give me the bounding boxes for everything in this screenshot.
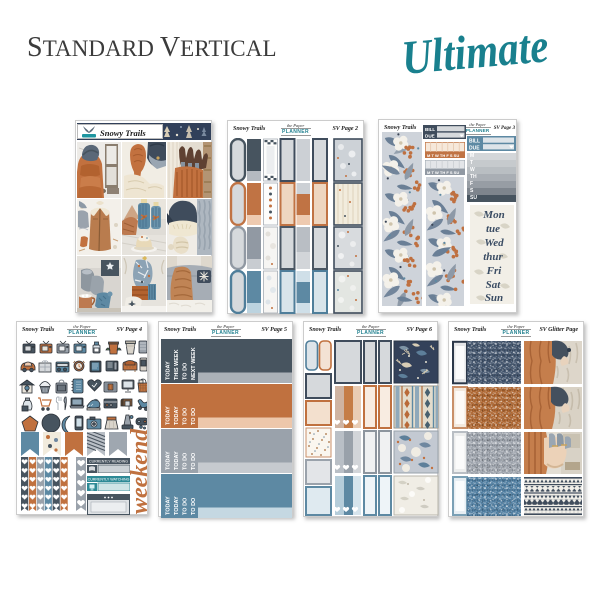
svg-text:NEXT WEEK: NEXT WEEK xyxy=(191,347,197,380)
svg-text:TODAY: TODAY xyxy=(166,451,172,470)
svg-text:TO DO: TO DO xyxy=(183,362,189,380)
svg-text:Wed: Wed xyxy=(484,237,504,249)
svg-text:TODAY: TODAY xyxy=(174,451,180,470)
svg-text:Mon: Mon xyxy=(482,209,504,221)
svg-text:thur: thur xyxy=(483,251,503,263)
svg-text:TO DO: TO DO xyxy=(191,497,197,515)
svg-text:M T W TH F S SU: M T W TH F S SU xyxy=(427,170,459,175)
svg-text:TO DO: TO DO xyxy=(183,407,189,425)
svg-text:TO DO: TO DO xyxy=(191,407,197,425)
svg-text:tue: tue xyxy=(486,223,500,235)
svg-text:CURRENTLY READING: CURRENTLY READING xyxy=(89,460,128,464)
svg-text:M T W TH F S SU: M T W TH F S SU xyxy=(427,153,459,158)
svg-text:BILL: BILL xyxy=(425,127,435,132)
svg-text:THIS WEEK: THIS WEEK xyxy=(174,349,180,380)
svg-text:TODAY: TODAY xyxy=(166,406,172,425)
svg-text:TODAY: TODAY xyxy=(166,496,172,515)
svg-text:BILL: BILL xyxy=(469,138,480,144)
svg-text:Fri: Fri xyxy=(486,265,503,277)
svg-text:TO DO: TO DO xyxy=(183,497,189,515)
svg-text:TODAY: TODAY xyxy=(174,496,180,515)
svg-text:TO DO: TO DO xyxy=(191,452,197,470)
svg-text:DUE: DUE xyxy=(469,146,480,151)
svg-text:TODAY: TODAY xyxy=(174,406,180,425)
svg-text:Sat: Sat xyxy=(486,279,502,291)
svg-text:CURRENTLY WATCHING: CURRENTLY WATCHING xyxy=(88,478,130,482)
svg-text:DUE: DUE xyxy=(425,134,435,139)
svg-text:TO DO: TO DO xyxy=(183,452,189,470)
svg-text:Sun: Sun xyxy=(485,292,503,304)
svg-text:TODAY: TODAY xyxy=(166,361,172,380)
